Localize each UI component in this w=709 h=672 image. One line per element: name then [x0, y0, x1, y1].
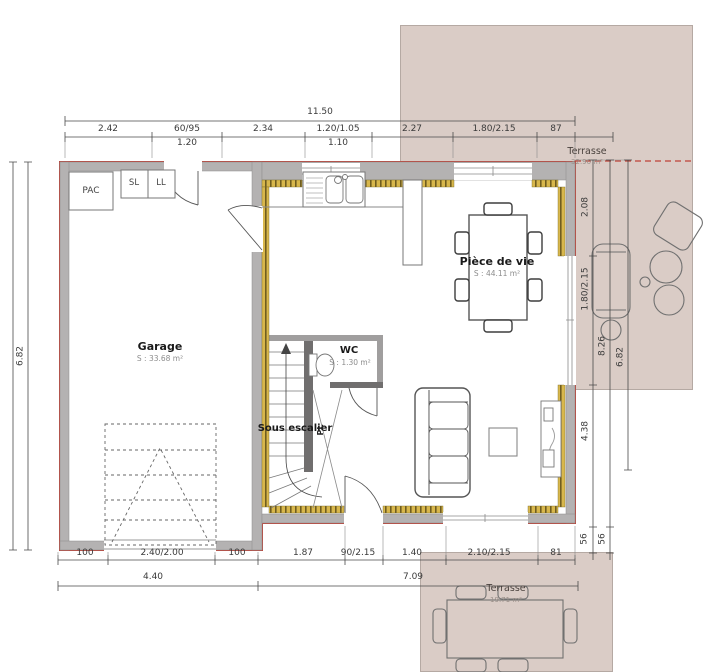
dim-top-3: 2.34	[253, 125, 273, 134]
dim-top-7: 87	[550, 125, 561, 134]
tv-unit	[541, 401, 561, 477]
dim-right-6: 56	[581, 533, 590, 544]
living-room-label: Pièce de vie	[460, 256, 535, 267]
terrace-bottom-area-label: 19.71 m²	[490, 597, 522, 604]
dim-right-3: 8.26	[599, 336, 608, 356]
dim-bottom2-1: 4.40	[143, 573, 163, 582]
dim-right-7: 56	[599, 533, 608, 544]
dim-bottom-3: 100	[228, 549, 245, 558]
wc-label: WC	[340, 346, 358, 356]
dim-bottom-7: 2.10/2.15	[467, 549, 510, 558]
terrace-right-label: Terrasse	[567, 147, 606, 157]
dim-bottom-5: 90/2.15	[341, 549, 376, 558]
dim-bottom-4: 1.87	[293, 549, 313, 558]
dim-left: 6.82	[17, 346, 26, 366]
dim-top-sub-2: 1.10	[328, 139, 348, 148]
kitchen-cabinet	[403, 180, 422, 265]
terrace-right-area-label: 32.90 m²	[571, 159, 603, 166]
sofa	[415, 388, 470, 497]
terrace-bottom-label: Terrasse	[486, 584, 525, 594]
pac-label: PAC	[82, 187, 99, 196]
dim-right-1: 2.08	[582, 197, 591, 217]
garage-label: Garage	[138, 341, 183, 352]
dim-top-5: 2.27	[402, 125, 422, 134]
dim-top-sub-1: 1.20	[177, 139, 197, 148]
dim-bottom2-2: 7.09	[403, 573, 423, 582]
dim-bottom-1: 100	[76, 549, 93, 558]
dim-right-4: 6.82	[617, 347, 626, 367]
dim-top-6: 1.80/2.15	[472, 125, 515, 134]
sl-label: SL	[129, 179, 139, 188]
garage-area: S : 33.68 m²	[137, 355, 183, 363]
closet-pl-label: PL	[317, 425, 325, 436]
dim-right-2: 1.80/2.15	[582, 267, 591, 310]
floor-plan: 11.50 2.42 60/95 2.34 1.20/1.05 2.27 1.8…	[0, 0, 709, 672]
coffee-table	[489, 428, 517, 456]
dim-bottom-2: 2.40/2.00	[140, 549, 183, 558]
dim-right-5: 4.38	[582, 421, 591, 441]
ll-label: LL	[156, 179, 165, 188]
dim-bottom-6: 1.40	[402, 549, 422, 558]
dim-top-4: 1.20/1.05	[316, 125, 359, 134]
terrace-bottom-area	[421, 553, 613, 672]
dim-top-2: 60/95	[174, 125, 200, 134]
dim-bottom-8: 81	[550, 549, 561, 558]
living-room-area: S : 44.11 m²	[474, 270, 520, 278]
dim-top-1: 2.42	[98, 125, 118, 134]
dim-overall-width: 11.50	[307, 108, 333, 117]
wc-area: S : 1.30 m²	[329, 359, 370, 367]
